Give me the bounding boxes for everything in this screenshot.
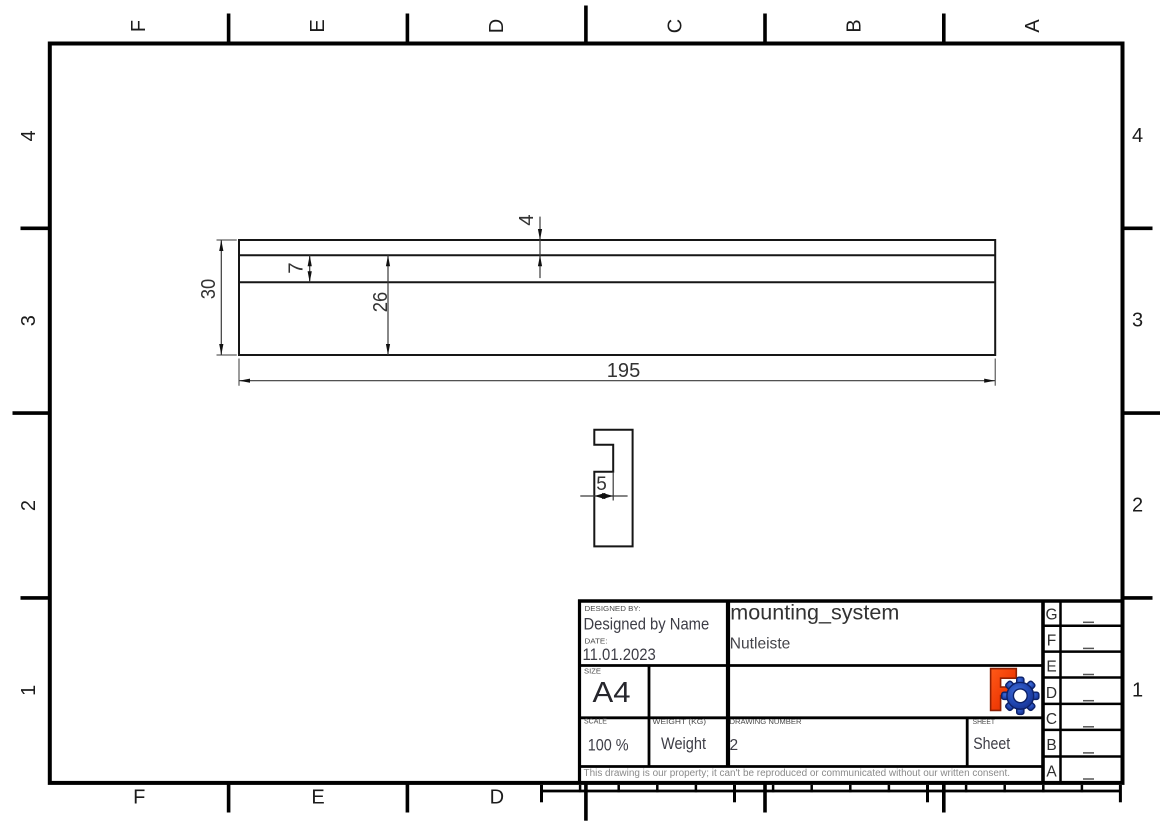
svg-text:2: 2 (18, 500, 40, 511)
svg-text:Weight: Weight (661, 735, 706, 753)
svg-text:B: B (843, 19, 865, 32)
svg-text:3: 3 (18, 315, 40, 326)
svg-text:B: B (1046, 737, 1056, 754)
svg-text:195: 195 (607, 359, 641, 382)
svg-text:2: 2 (1132, 495, 1143, 517)
svg-text:SCALE: SCALE (584, 717, 607, 726)
svg-text:Nutleiste: Nutleiste (730, 636, 791, 653)
svg-text:D: D (490, 787, 504, 809)
svg-text:F: F (1047, 633, 1056, 650)
svg-text:A4: A4 (593, 677, 631, 709)
svg-text:DESIGNED BY:: DESIGNED BY: (585, 604, 641, 613)
svg-text:G: G (1045, 607, 1057, 624)
svg-text:F: F (128, 20, 150, 32)
svg-text:Sheet: Sheet (973, 735, 1010, 753)
svg-text:2: 2 (730, 737, 739, 754)
svg-text:E: E (307, 19, 329, 32)
svg-text:DATE:: DATE: (585, 637, 608, 646)
svg-text:DRAWING NUMBER: DRAWING NUMBER (730, 717, 803, 726)
svg-text:7: 7 (284, 262, 307, 273)
svg-text:100 %: 100 % (588, 737, 629, 755)
svg-text:5: 5 (596, 474, 607, 495)
svg-text:E: E (311, 787, 324, 809)
svg-text:30: 30 (197, 279, 220, 300)
svg-text:SIZE: SIZE (584, 667, 601, 676)
svg-text:1: 1 (18, 685, 40, 696)
svg-text:4: 4 (18, 130, 40, 141)
svg-text:E: E (1046, 659, 1056, 676)
svg-text:4: 4 (515, 214, 538, 225)
svg-text:F: F (133, 787, 145, 809)
svg-text:WEIGHT (KG): WEIGHT (KG) (653, 717, 707, 726)
svg-text:1: 1 (1132, 679, 1143, 701)
svg-text:A: A (1046, 764, 1057, 781)
svg-text:D: D (1046, 685, 1057, 702)
svg-text:mounting_system: mounting_system (730, 601, 899, 625)
svg-text:C: C (1046, 711, 1057, 728)
svg-text:4: 4 (1132, 125, 1143, 147)
svg-text:A: A (1022, 19, 1044, 33)
svg-text:Designed by Name: Designed by Name (584, 616, 710, 634)
svg-text:26: 26 (369, 292, 392, 313)
svg-text:C: C (665, 19, 687, 33)
svg-text:D: D (486, 19, 508, 33)
svg-text:11.01.2023: 11.01.2023 (583, 646, 656, 664)
svg-text:3: 3 (1132, 310, 1143, 332)
svg-text:SHEET: SHEET (973, 717, 996, 726)
svg-text:This drawing is our property;: This drawing is our property; it can't b… (584, 768, 1011, 779)
